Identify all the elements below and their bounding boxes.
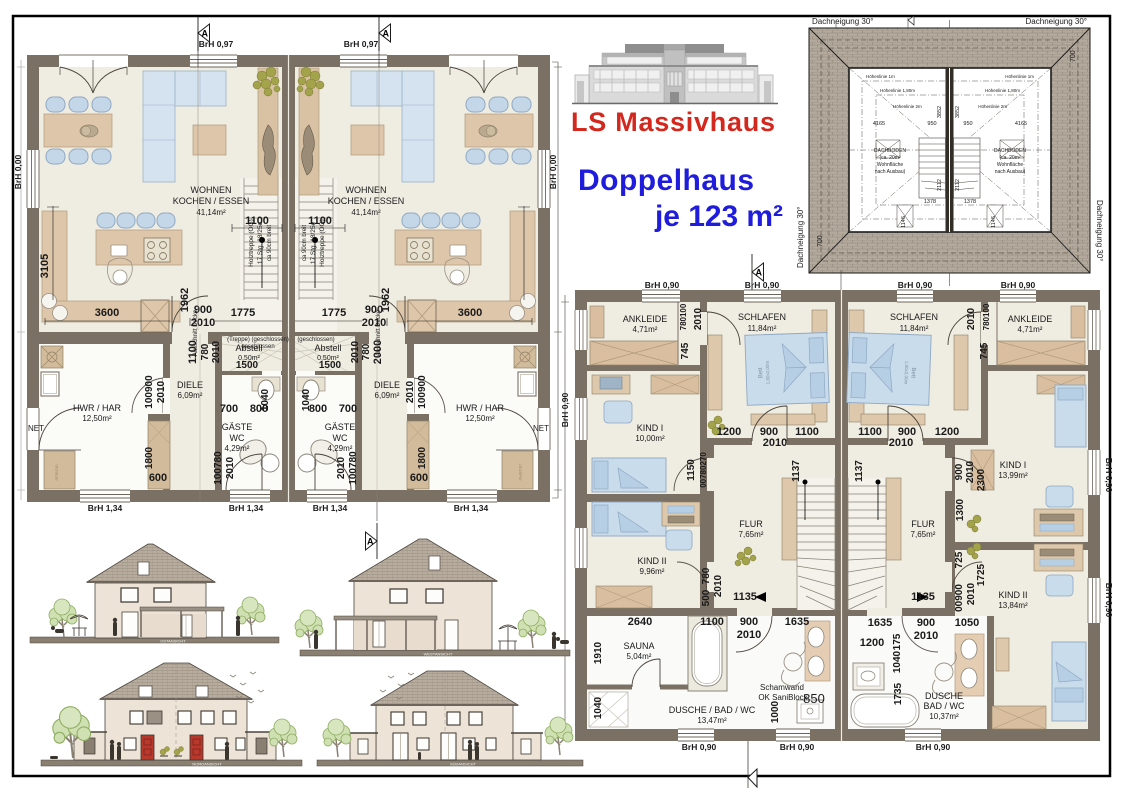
- svg-text:1100: 1100: [700, 616, 724, 628]
- svg-text:Holztreppe (OG): Holztreppe (OG): [319, 219, 326, 267]
- svg-text:900: 900: [954, 463, 965, 480]
- svg-text:3852: 3852: [937, 106, 943, 118]
- svg-text:1000: 1000: [770, 700, 781, 723]
- svg-text:LS Massivhaus: LS Massivhaus: [571, 107, 775, 137]
- svg-text:13,99m²: 13,99m²: [998, 471, 1028, 480]
- svg-text:1800: 1800: [417, 446, 428, 469]
- svg-text:1500: 1500: [236, 360, 259, 371]
- svg-text:ANKLEIDE: ANKLEIDE: [623, 314, 668, 324]
- svg-text:BrH 0,97: BrH 0,97: [199, 39, 234, 49]
- svg-text:7,65m²: 7,65m²: [739, 530, 764, 539]
- svg-text:1100: 1100: [858, 426, 882, 438]
- svg-text:2010: 2010: [965, 460, 976, 483]
- svg-text:1775: 1775: [322, 307, 346, 319]
- svg-text:geschlossen: geschlossen: [241, 344, 274, 350]
- svg-text:1,80x2,00m: 1,80x2,00m: [765, 360, 771, 384]
- svg-text:DIELE: DIELE: [374, 380, 400, 390]
- svg-text:11,84m²: 11,84m²: [748, 324, 777, 333]
- svg-text:BAD / WC: BAD / WC: [923, 701, 965, 711]
- svg-text:600: 600: [410, 472, 428, 484]
- svg-text:BrH 0,90: BrH 0,90: [898, 280, 933, 290]
- svg-text:WOHNEN: WOHNEN: [191, 185, 232, 195]
- svg-text:1200: 1200: [717, 426, 741, 438]
- svg-text:10,00m²: 10,00m²: [635, 434, 665, 443]
- svg-text:BrH 0,90: BrH 0,90: [1001, 280, 1036, 290]
- svg-text:Schamwand: Schamwand: [760, 683, 804, 692]
- svg-text:11,84m²: 11,84m²: [900, 324, 929, 333]
- svg-text:2010: 2010: [156, 380, 167, 403]
- svg-text:ca 90cm breit: ca 90cm breit: [302, 225, 308, 261]
- svg-text:1135: 1135: [911, 591, 935, 603]
- svg-text:WESTANSICHT: WESTANSICHT: [424, 652, 453, 657]
- svg-text:13,84m²: 13,84m²: [998, 601, 1028, 610]
- svg-text:5,04m²: 5,04m²: [627, 652, 652, 661]
- svg-text:DIELE: DIELE: [177, 380, 203, 390]
- svg-text:1725: 1725: [976, 563, 987, 586]
- svg-text:nach Ausbau): nach Ausbau): [875, 169, 906, 175]
- svg-text:DACHBODEN: DACHBODEN: [994, 148, 1026, 154]
- svg-text:2640: 2640: [628, 616, 652, 628]
- svg-text:BrH 0,90: BrH 0,90: [1104, 583, 1114, 618]
- svg-text:1635: 1635: [868, 617, 892, 629]
- svg-text:NORDANSICHT: NORDANSICHT: [192, 762, 222, 767]
- svg-text:KIND I: KIND I: [637, 423, 664, 433]
- svg-text:2112: 2112: [955, 179, 961, 191]
- svg-text:Wohnfläche: Wohnfläche: [877, 162, 904, 168]
- svg-text:(Treppe) (geschlossen): (Treppe) (geschlossen): [227, 337, 289, 343]
- svg-text:745: 745: [680, 342, 691, 359]
- svg-text:Höhenlinie 1,80m: Höhenlinie 1,80m: [985, 88, 1020, 93]
- svg-text:KOCHEN / ESSEN: KOCHEN / ESSEN: [173, 196, 250, 206]
- svg-text:(ca. 20m²: (ca. 20m²: [879, 155, 900, 161]
- svg-text:3600: 3600: [458, 307, 482, 319]
- svg-text:700: 700: [1070, 50, 1077, 62]
- svg-text:4,71m²: 4,71m²: [633, 325, 658, 334]
- svg-text:(geschlossen): (geschlossen): [297, 337, 334, 343]
- svg-text:BrH 1,34: BrH 1,34: [88, 503, 123, 513]
- svg-text:1735: 1735: [893, 682, 904, 705]
- svg-text:1137: 1137: [854, 460, 865, 482]
- svg-text:12,50m²: 12,50m²: [465, 414, 495, 423]
- svg-text:950: 950: [927, 121, 936, 127]
- svg-text:KOCHEN / ESSEN: KOCHEN / ESSEN: [328, 196, 405, 206]
- svg-text:1800: 1800: [144, 446, 155, 469]
- svg-text:SÜDANSICHT: SÜDANSICHT: [450, 762, 477, 767]
- svg-text:2010: 2010: [362, 317, 386, 329]
- svg-text:Holztreppe (OG): Holztreppe (OG): [248, 219, 255, 267]
- svg-text:900: 900: [917, 617, 935, 629]
- svg-text:2010: 2010: [405, 380, 416, 403]
- svg-text:2010: 2010: [211, 340, 222, 363]
- svg-text:1500: 1500: [319, 360, 342, 371]
- svg-text:BrH 0,00: BrH 0,00: [548, 154, 558, 189]
- svg-text:4,71m²: 4,71m²: [1018, 325, 1043, 334]
- svg-text:WC: WC: [230, 433, 245, 443]
- svg-text:41,14m²: 41,14m²: [351, 208, 381, 217]
- svg-text:Höhenlinie 2m: Höhenlinie 2m: [893, 104, 922, 109]
- svg-text:Höhenlinie 1m: Höhenlinie 1m: [866, 74, 895, 79]
- svg-text:BrH 1,34: BrH 1,34: [229, 503, 264, 513]
- svg-text:700: 700: [817, 235, 824, 247]
- svg-text:780: 780: [701, 567, 712, 584]
- svg-text:Höhenlinie 1m: Höhenlinie 1m: [1005, 74, 1034, 79]
- svg-text:950: 950: [963, 121, 972, 127]
- svg-text:745: 745: [979, 342, 990, 359]
- svg-text:GÄSTE: GÄSTE: [222, 422, 253, 432]
- svg-text:1962: 1962: [380, 288, 392, 312]
- svg-text:BrH 0,90: BrH 0,90: [682, 742, 717, 752]
- svg-text:WC: WC: [333, 433, 348, 443]
- svg-text:FLUR: FLUR: [739, 519, 763, 529]
- svg-text:780: 780: [200, 343, 211, 360]
- svg-text:2010: 2010: [914, 630, 938, 642]
- svg-text:SCHLAFEN: SCHLAFEN: [890, 312, 938, 322]
- svg-text:1150: 1150: [686, 459, 697, 481]
- svg-text:ca 90cm breit: ca 90cm breit: [267, 225, 273, 261]
- svg-text:NET: NET: [533, 424, 549, 433]
- svg-text:nach Ausbau): nach Ausbau): [995, 169, 1026, 175]
- svg-text:DUSCHE / BAD / WC: DUSCHE / BAD / WC: [669, 705, 756, 715]
- svg-text:6,09m²: 6,09m²: [178, 391, 203, 400]
- svg-text:Höhenlinie 2m: Höhenlinie 2m: [978, 104, 1007, 109]
- svg-text:9,96m²: 9,96m²: [640, 567, 665, 576]
- svg-text:1137: 1137: [791, 460, 802, 482]
- svg-text:00900: 00900: [954, 584, 965, 612]
- svg-text:KIND II: KIND II: [998, 590, 1027, 600]
- svg-text:BrH 0,90: BrH 0,90: [1104, 458, 1114, 493]
- svg-text:2010: 2010: [350, 340, 361, 363]
- svg-text:1378: 1378: [964, 199, 976, 205]
- svg-text:BrH 0,90: BrH 0,90: [745, 280, 780, 290]
- svg-text:2010: 2010: [966, 307, 977, 330]
- svg-text:HWR / HAR: HWR / HAR: [456, 403, 504, 413]
- svg-text:Höhenlinie 1,80m: Höhenlinie 1,80m: [880, 88, 915, 93]
- svg-text:100900: 100900: [144, 375, 155, 409]
- svg-text:100900: 100900: [417, 375, 428, 409]
- svg-text:500: 500: [701, 589, 712, 606]
- svg-text:780: 780: [361, 343, 372, 360]
- svg-text:je 123 m²: je 123 m²: [654, 200, 783, 233]
- svg-text:Dachneigung 30°: Dachneigung 30°: [1026, 17, 1087, 26]
- svg-text:1378: 1378: [924, 199, 936, 205]
- svg-text:1040: 1040: [301, 388, 312, 411]
- svg-text:KIND II: KIND II: [637, 556, 666, 566]
- svg-text:BrH 0,00: BrH 0,00: [13, 154, 23, 189]
- svg-text:780100: 780100: [679, 303, 688, 330]
- svg-text:Bett: Bett: [910, 367, 916, 378]
- svg-text:2010: 2010: [693, 307, 704, 330]
- svg-text:10,37m²: 10,37m²: [929, 712, 959, 721]
- svg-text:7,65m²: 7,65m²: [911, 530, 936, 539]
- svg-text:FLUR: FLUR: [911, 519, 935, 529]
- svg-text:2010: 2010: [713, 574, 724, 597]
- svg-text:SPIEGEL: SPIEGEL: [54, 463, 59, 481]
- svg-text:1962: 1962: [179, 288, 191, 312]
- svg-text:700: 700: [339, 403, 357, 415]
- svg-text:12,50m²: 12,50m²: [82, 414, 112, 423]
- svg-text:1200: 1200: [935, 426, 959, 438]
- svg-text:BrH 0,90: BrH 0,90: [645, 280, 680, 290]
- svg-text:GÄSTE: GÄSTE: [325, 422, 356, 432]
- svg-text:ANKLEIDE: ANKLEIDE: [1008, 314, 1053, 324]
- svg-text:600: 600: [149, 472, 167, 484]
- svg-text:Dachneigung 30°: Dachneigung 30°: [1095, 200, 1104, 261]
- svg-text:OSTANSICHT: OSTANSICHT: [160, 639, 186, 644]
- svg-text:NET: NET: [28, 424, 44, 433]
- svg-text:1635: 1635: [785, 616, 809, 628]
- svg-text:4165: 4165: [1015, 121, 1027, 127]
- svg-text:WOHNEN: WOHNEN: [346, 185, 387, 195]
- svg-text:700: 700: [220, 403, 238, 415]
- svg-text:2010: 2010: [889, 437, 913, 449]
- svg-text:2300: 2300: [976, 468, 987, 491]
- svg-text:Abstell: Abstell: [314, 343, 341, 353]
- svg-text:13,47m²: 13,47m²: [697, 716, 727, 725]
- svg-text:2010: 2010: [966, 582, 977, 605]
- svg-text:100780: 100780: [348, 451, 359, 485]
- svg-text:1300: 1300: [955, 498, 966, 521]
- svg-text:BrH 0,97: BrH 0,97: [344, 39, 379, 49]
- svg-text:3852: 3852: [955, 106, 961, 118]
- svg-text:00780270: 00780270: [699, 452, 708, 488]
- svg-text:BrH 0,90: BrH 0,90: [780, 742, 815, 752]
- svg-text:DACHBODEN: DACHBODEN: [874, 148, 906, 154]
- svg-text:1040: 1040: [593, 696, 604, 719]
- svg-text:1200: 1200: [860, 637, 884, 649]
- svg-text:1775: 1775: [231, 307, 255, 319]
- svg-text:SAUNA: SAUNA: [623, 641, 654, 651]
- svg-text:1040: 1040: [892, 650, 903, 673]
- svg-text:2010: 2010: [336, 456, 347, 479]
- svg-text:100780: 100780: [213, 451, 224, 485]
- svg-text:DUSCHE: DUSCHE: [925, 691, 963, 701]
- svg-text:2010: 2010: [737, 629, 761, 641]
- svg-text:1050: 1050: [955, 617, 979, 629]
- svg-text:BrH 1,34: BrH 1,34: [454, 503, 489, 513]
- svg-text:4,29m²: 4,29m²: [225, 444, 250, 453]
- svg-text:900: 900: [740, 616, 758, 628]
- svg-text:BrH 1,34: BrH 1,34: [313, 503, 348, 513]
- svg-text:(ca. 20m²: (ca. 20m²: [999, 155, 1020, 161]
- svg-text:Bett: Bett: [758, 367, 764, 378]
- svg-text:1135: 1135: [733, 591, 757, 603]
- svg-text:2010: 2010: [763, 437, 787, 449]
- svg-text:850: 850: [803, 691, 825, 706]
- svg-text:Dachneigung 30°: Dachneigung 30°: [812, 17, 873, 26]
- svg-text:3600: 3600: [95, 307, 119, 319]
- svg-text:BrH 0,90: BrH 0,90: [916, 742, 951, 752]
- svg-text:BrH 0,90: BrH 0,90: [560, 392, 570, 427]
- svg-text:725: 725: [954, 551, 965, 568]
- svg-text:SCHLAFEN: SCHLAFEN: [738, 312, 786, 322]
- svg-text:175: 175: [892, 633, 903, 650]
- svg-text:KIND I: KIND I: [1000, 460, 1027, 470]
- svg-text:4165: 4165: [873, 121, 885, 127]
- svg-text:6,09m²: 6,09m²: [375, 391, 400, 400]
- svg-text:3105: 3105: [39, 254, 51, 278]
- svg-text:Doppelhaus: Doppelhaus: [578, 164, 754, 197]
- svg-text:41,14m²: 41,14m²: [196, 208, 226, 217]
- svg-text:1,80x2,00m: 1,80x2,00m: [903, 361, 909, 385]
- svg-text:1146: 1146: [901, 216, 907, 228]
- svg-text:780100: 780100: [982, 303, 991, 330]
- svg-text:OK SaniBlock: OK SaniBlock: [758, 693, 808, 702]
- svg-text:2112: 2112: [937, 179, 943, 191]
- svg-text:1146: 1146: [991, 216, 997, 228]
- svg-text:1910: 1910: [593, 641, 604, 664]
- svg-text:Wohnfläche: Wohnfläche: [997, 162, 1024, 168]
- svg-text:1100: 1100: [795, 426, 819, 438]
- svg-text:2010: 2010: [225, 456, 236, 479]
- svg-text:1040: 1040: [260, 388, 271, 411]
- svg-text:HWR / HAR: HWR / HAR: [73, 403, 121, 413]
- svg-text:Dachneigung 30°: Dachneigung 30°: [796, 207, 805, 268]
